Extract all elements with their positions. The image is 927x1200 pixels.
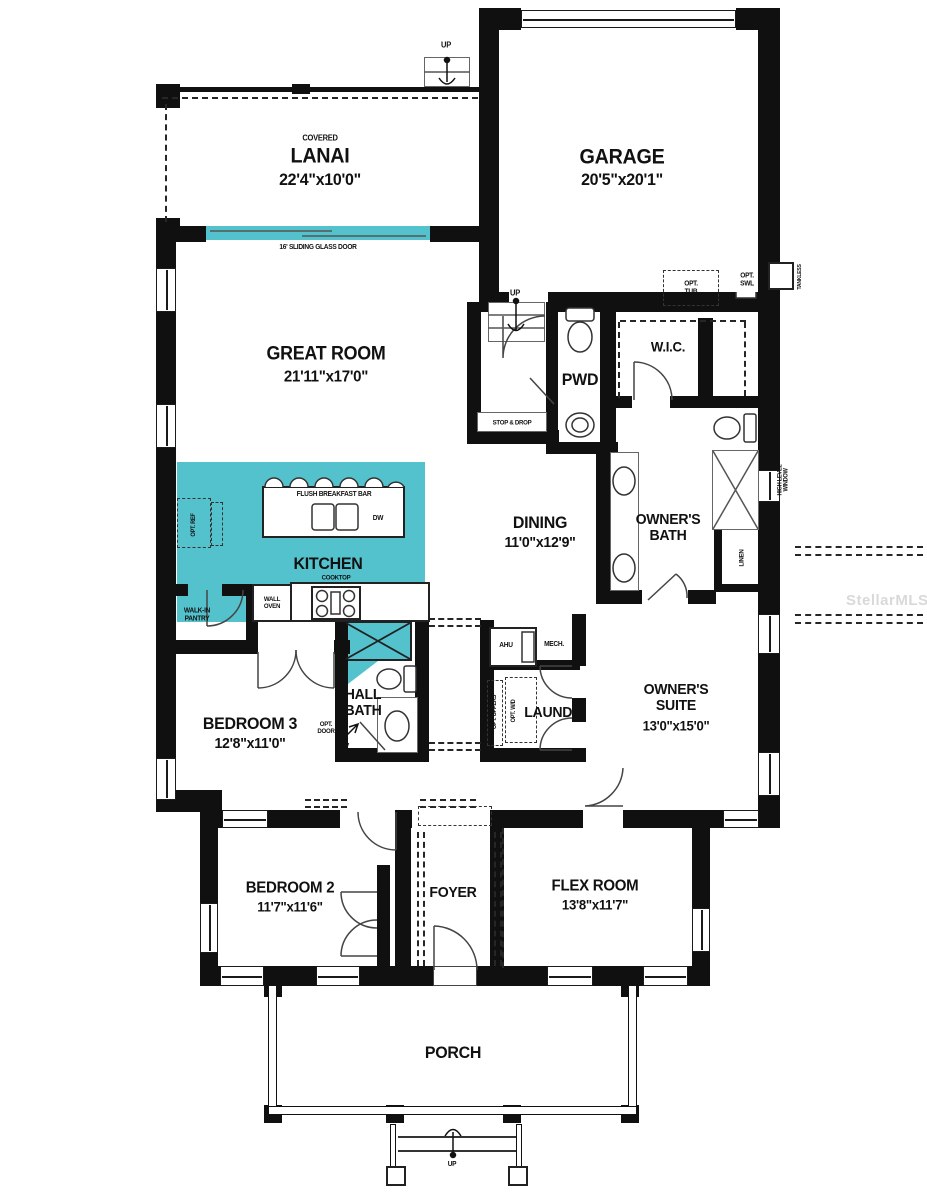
room-label-great-room: GREAT ROOM <box>267 345 386 366</box>
hall-sink <box>385 711 409 741</box>
cooktop-burner <box>317 591 328 602</box>
cooktop-label: COOKTOP <box>322 574 351 581</box>
flush-bar-label: FLUSH BREAKFAST BAR <box>297 491 372 499</box>
room-dims-owners-suite: 13'0"x15'0" <box>643 718 710 733</box>
owners-sink-2 <box>613 554 635 582</box>
room-dims-bedroom3: 12'8"x11'0" <box>214 736 285 752</box>
up-arrow-porch <box>445 1130 461 1156</box>
hall-toilet-tank <box>404 666 416 692</box>
room-dims-garage: 20'5"x20'1" <box>581 171 663 189</box>
room-dims-bedroom2: 11'7"x11'6" <box>257 899 322 914</box>
bar-stools <box>265 478 404 487</box>
pwd-toilet-bowl <box>568 322 592 352</box>
room-dims-great-room: 21'11"x17'0" <box>284 368 368 385</box>
door-closet-lower <box>341 920 377 956</box>
opt-swl-bracket <box>736 292 756 298</box>
room-label-porch: PORCH <box>425 1044 481 1062</box>
room-label-pwd: PWD <box>562 371 598 389</box>
room-label-bedroom3: BEDROOM 3 <box>203 715 297 733</box>
door-owners-bath <box>648 574 687 600</box>
room-label-wic: W.I.C. <box>651 339 685 354</box>
opt-tub-label: OPT. TUB <box>678 280 704 295</box>
room-label-hall-bath: HALL BATH <box>338 687 389 719</box>
room-label-bedroom2: BEDROOM 2 <box>246 879 335 896</box>
room-dims-lanai: 22'4"x10'0" <box>279 171 361 189</box>
door-laundry-lower <box>540 718 572 750</box>
watermark: StellarMLS <box>846 592 927 609</box>
door-closet-upper <box>341 892 377 928</box>
door-bedroom2 <box>358 812 396 850</box>
owners-toilet-tank <box>744 414 756 442</box>
tankless-label: TANKLESS <box>798 264 804 289</box>
owners-sink-1 <box>613 467 635 495</box>
room-label-garage: GARAGE <box>580 147 665 170</box>
door-wic <box>634 362 672 400</box>
door-garage-entry <box>503 316 545 358</box>
opt-ref-label: OPT. REF <box>191 513 197 536</box>
cooktop-burner <box>344 606 355 617</box>
linen-label-1: LINEN <box>607 422 614 439</box>
fixtures-layer <box>0 0 927 1200</box>
door-laundry-upper <box>540 666 572 698</box>
island-sink-1 <box>312 504 334 530</box>
stop-drop-label: STOP & DROP <box>493 419 532 426</box>
owners-toilet-bowl <box>714 417 740 439</box>
up-label-porch: UP <box>448 1161 457 1169</box>
door-pwd-leaf <box>530 378 554 404</box>
walk-in-pantry-label: WALK-IN PANTRY <box>174 607 221 622</box>
sliding-door-label: 16' SLIDING GLASS DOOR <box>279 244 356 252</box>
door-front <box>434 926 477 970</box>
ahu-label: AHU <box>499 642 512 650</box>
cooktop-burner <box>344 591 355 602</box>
room-label-foyer: FOYER <box>429 885 476 901</box>
door-hall-bath-leaf <box>360 722 385 750</box>
room-dims-dining: 11'0"x12'9" <box>504 535 575 551</box>
pwd-toilet-tank <box>566 308 594 321</box>
opt-swl-label: OPT. SWL <box>735 272 759 287</box>
room-label-kitchen: KITCHEN <box>293 555 362 573</box>
door-bedroom3-left <box>258 650 296 688</box>
room-label-owners-suite: OWNER'S SUITE <box>634 682 719 714</box>
room-label-lanai: LANAI <box>291 146 350 169</box>
cooktop-burner <box>317 606 328 617</box>
door-owners-suite <box>585 768 623 806</box>
mech-label: MECH. <box>544 641 564 649</box>
opt-door-label: OPT. DOOR <box>312 721 340 735</box>
room-label-owners-bath: OWNER'S BATH <box>630 512 705 544</box>
room-label-dining: DINING <box>513 514 567 532</box>
door-bedroom3-right <box>296 650 334 688</box>
wall-oven-label: WALL OVEN <box>258 596 286 610</box>
linen-label-2: LINEN <box>738 550 745 567</box>
dw-label: DW <box>373 515 383 523</box>
hall-shower-x <box>346 623 410 659</box>
high-level-window-label: HIGH LEVEL WINDOW <box>778 459 791 500</box>
island-sink-2 <box>336 504 358 530</box>
room-label-lanai-prefix: COVERED <box>302 135 337 144</box>
owners-shower-x <box>713 451 758 529</box>
opt-wd-label: OPT. W/D <box>511 700 517 723</box>
room-label-laundry: LAUND. <box>524 705 576 721</box>
slider-panels <box>210 231 426 236</box>
room-dims-flex: 13'8"x11'7" <box>562 897 628 912</box>
up-label-entry: UP <box>510 290 520 299</box>
room-label-flex: FLEX ROOM <box>552 877 639 894</box>
up-label-top: UP <box>441 42 451 51</box>
opt-uppers-label: OPT. UPPERS <box>492 695 498 729</box>
floor-plan: COVERED LANAI 22'4"x10'0" GARAGE 20'5"x2… <box>0 0 927 1200</box>
